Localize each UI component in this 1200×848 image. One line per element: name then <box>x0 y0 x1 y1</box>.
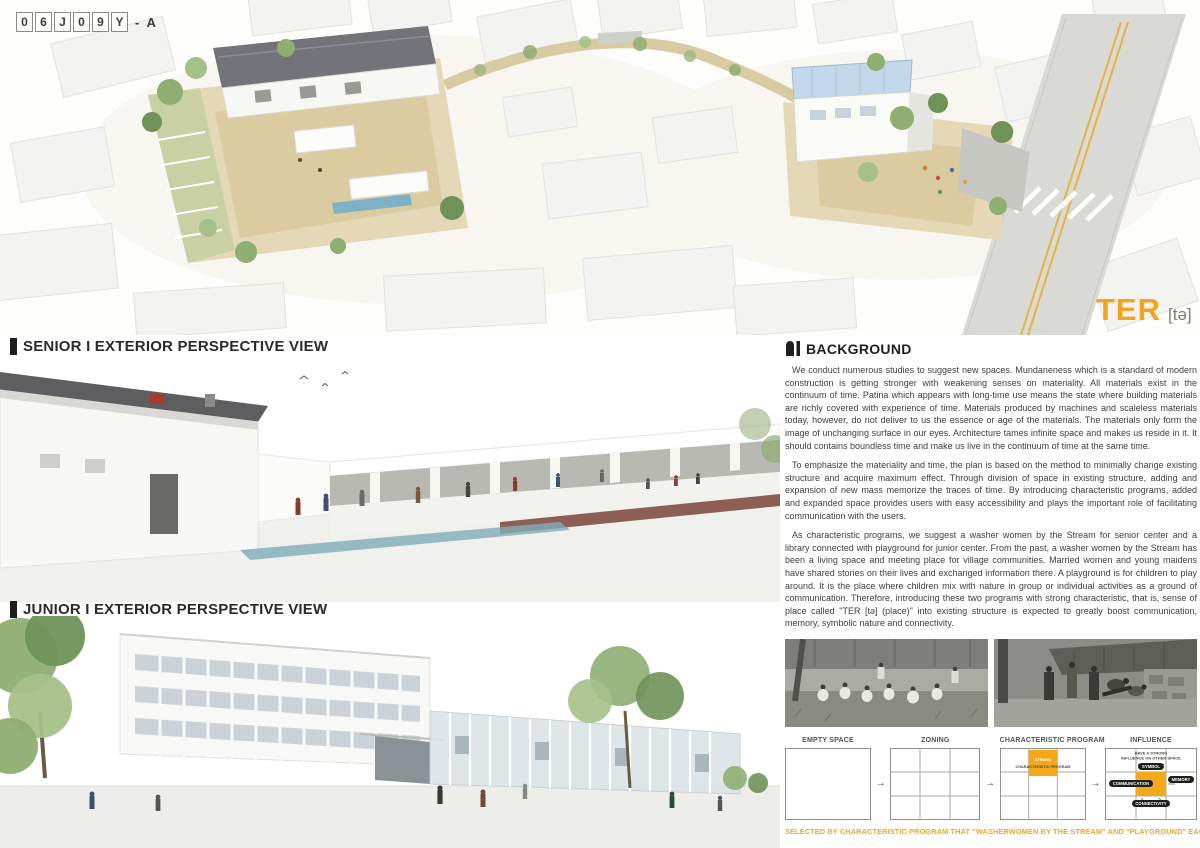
historic-photos <box>785 639 1197 727</box>
project-logo: TER [tə] <box>1096 292 1192 328</box>
zoning-grid <box>890 748 980 820</box>
influence-grid: HAVE A STRONG INFLUENCE ON OTHER SPACE S… <box>1105 748 1197 820</box>
senior-site <box>142 26 468 263</box>
children-photo-illustration <box>994 639 1197 727</box>
right-column: BACKGROUND We conduct numerous studies t… <box>785 340 1197 836</box>
code-char: J <box>54 12 71 32</box>
diagram-step-label: CHARACTERISTIC PROGRAM <box>1000 737 1086 744</box>
logo-phonetic: [tə] <box>1168 305 1192 325</box>
diagram-headers: EMPTY SPACE ZONING CHARACTERISTIC PROGRA… <box>785 737 1197 748</box>
entry-code: 0 6 J 0 9 Y - A <box>16 12 158 32</box>
photo-washerwomen-by-stream <box>785 639 988 727</box>
senior-building <box>0 372 268 568</box>
site-aerial-rendering <box>0 0 1200 335</box>
svg-text:CONNECTIVITY: CONNECTIVITY <box>1135 801 1166 806</box>
washerwomen-photo-illustration <box>785 639 988 727</box>
svg-text:STRONG: STRONG <box>1034 757 1050 762</box>
svg-text:INFLUENCE ON OTHER SPACE: INFLUENCE ON OTHER SPACE <box>1121 755 1181 760</box>
photo-children-playground <box>994 639 1197 727</box>
diagram-step-label: EMPTY SPACE <box>785 737 871 744</box>
code-suffix: - A <box>135 15 158 30</box>
diagram-box-zoning <box>890 748 980 820</box>
header-bar-icon <box>10 601 17 618</box>
code-char: Y <box>111 12 128 32</box>
roof-vent <box>150 393 165 404</box>
arrow-right-icon: → <box>871 748 890 820</box>
junior-section-header: JUNIOR I EXTERIOR PERSPECTIVE VIEW <box>10 601 327 618</box>
competition-board: 0 6 J 0 9 Y - A TER [tə] SENIOR I EXTERI… <box>0 0 1200 848</box>
junior-perspective-rendering <box>0 616 780 848</box>
diagram-step-label: INFLUENCE <box>1105 737 1197 744</box>
junior-section-label: JUNIOR I EXTERIOR PERSPECTIVE VIEW <box>23 601 327 618</box>
background-paragraph: We conduct numerous studies to suggest n… <box>785 364 1197 452</box>
logo-title: TER <box>1096 292 1161 328</box>
diagram-step-label: ZONING <box>890 737 980 744</box>
code-char: 6 <box>35 12 52 32</box>
svg-text:COMMUNICATION: COMMUNICATION <box>1113 781 1149 786</box>
code-char: 0 <box>16 12 33 32</box>
background-paragraph: To emphasize the materiality and time, t… <box>785 459 1197 522</box>
background-paragraph: As characteristic programs, we suggest a… <box>785 529 1197 630</box>
header-bar-icon <box>10 338 17 355</box>
arch-and-bar-icon <box>785 340 802 357</box>
senior-section-label: SENIOR I EXTERIOR PERSPECTIVE VIEW <box>23 338 328 355</box>
background-heading: BACKGROUND <box>806 341 912 357</box>
svg-text:CHARACTERISTIC PROGRAM: CHARACTERISTIC PROGRAM <box>1015 764 1070 769</box>
svg-text:SYMBOL: SYMBOL <box>1142 764 1160 769</box>
background-section-header: BACKGROUND <box>785 340 1197 357</box>
junior-perspective-illustration <box>0 616 780 848</box>
svg-text:MEMORY: MEMORY <box>1172 777 1191 782</box>
diagram-box-characteristic-program: STRONG CHARACTERISTIC PROGRAM <box>1000 748 1086 820</box>
diagram-caption: SELECTED BY CHARACTERISTIC PROGRAM THAT … <box>785 827 1197 836</box>
senior-section-header: SENIOR I EXTERIOR PERSPECTIVE VIEW <box>10 338 328 355</box>
process-diagram: EMPTY SPACE ZONING CHARACTERISTIC PROGRA… <box>785 737 1197 836</box>
senior-perspective-illustration <box>0 354 780 602</box>
diagram-boxes: → → <box>785 748 1197 820</box>
diagram-box-influence: HAVE A STRONG INFLUENCE ON OTHER SPACE S… <box>1105 748 1197 820</box>
code-char: 0 <box>73 12 90 32</box>
characteristic-program-grid: STRONG CHARACTERISTIC PROGRAM <box>1000 748 1086 820</box>
arrow-right-icon: → <box>1086 748 1105 820</box>
site-aerial-illustration <box>0 0 1200 335</box>
arrow-right-icon: → <box>980 748 999 820</box>
senior-perspective-rendering <box>0 354 780 602</box>
diagram-box-empty-space <box>785 748 871 820</box>
code-char: 9 <box>92 12 109 32</box>
entrance <box>375 736 430 784</box>
